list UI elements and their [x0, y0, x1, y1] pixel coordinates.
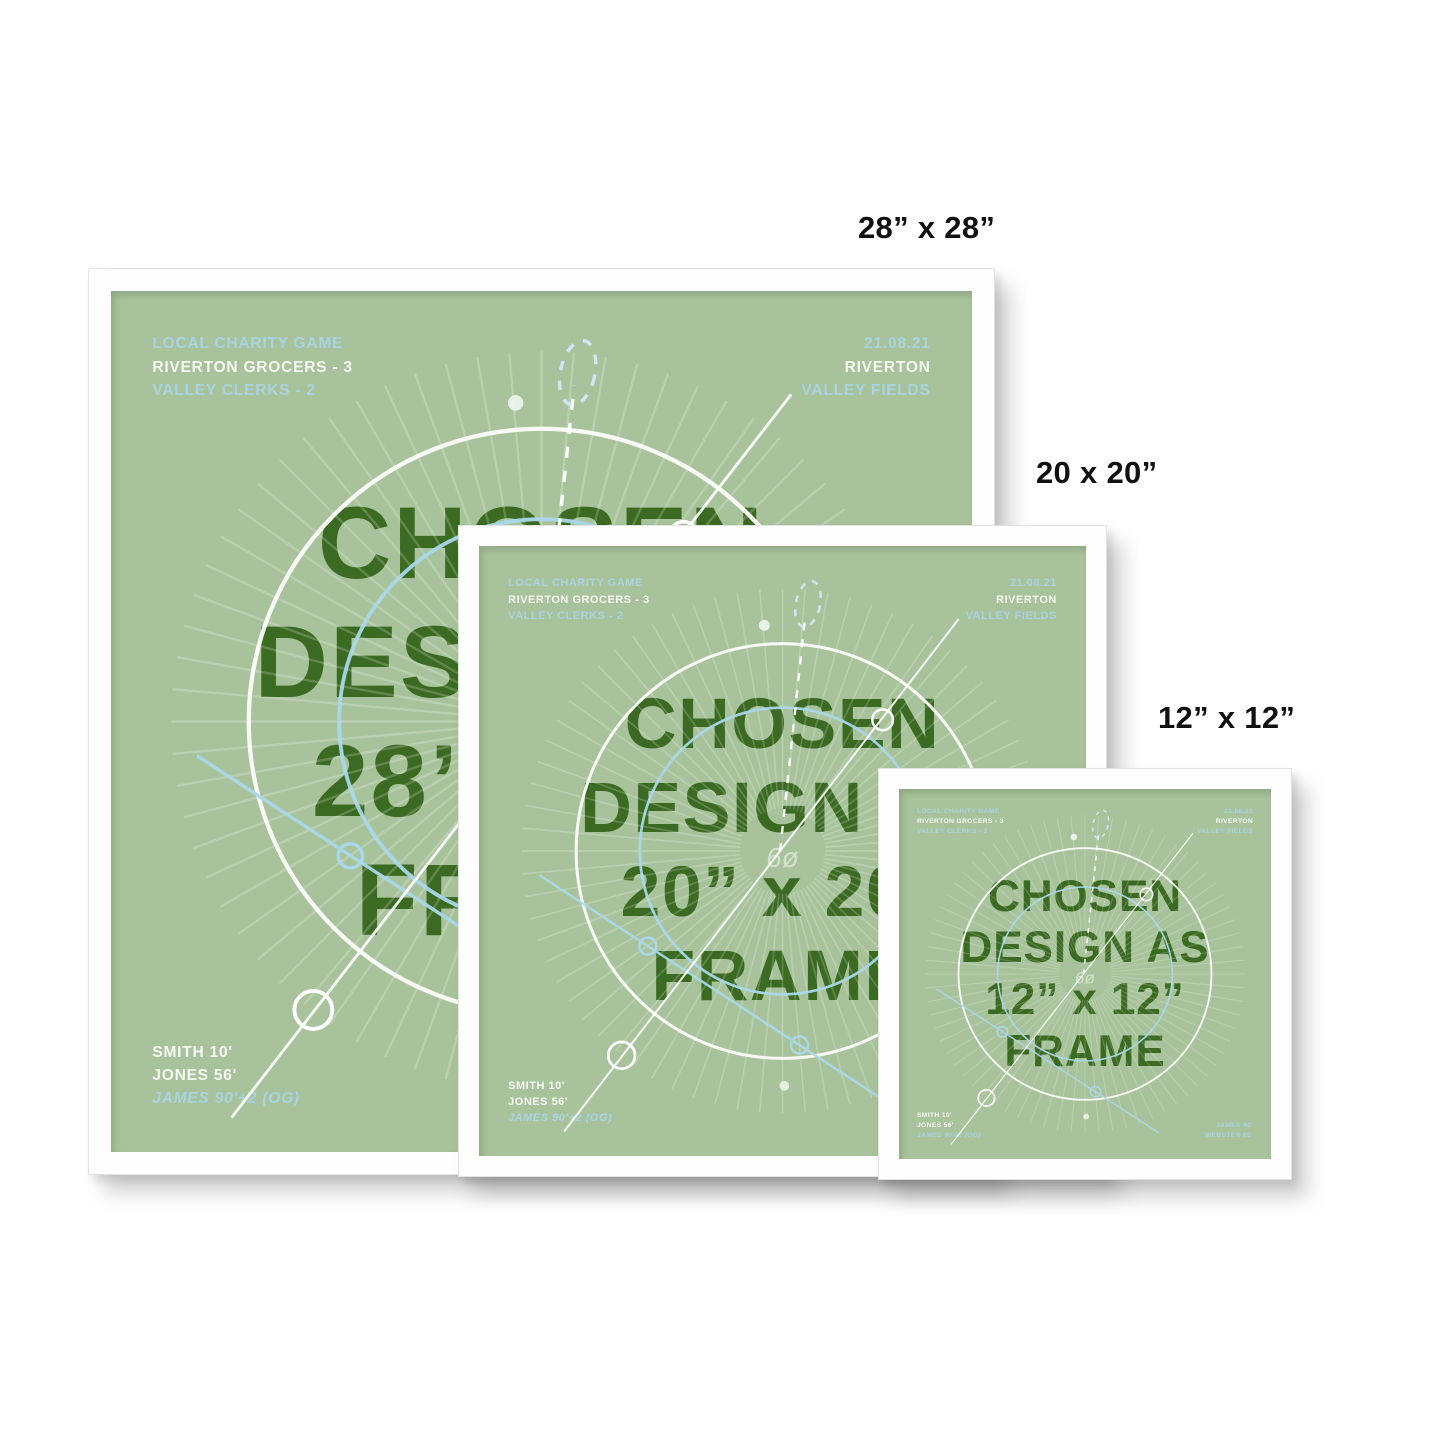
poster-header: LOCAL CHARITY GAME RIVERTON GROCERS - 3 …	[917, 807, 1253, 837]
scorer-line: JAMES 90'+2 (OG)	[508, 1110, 612, 1126]
scorer-line: JAMES 90'+2 (OG)	[152, 1087, 299, 1110]
size-label-12: 12” x 12”	[1158, 700, 1295, 736]
venue-info: 21.08.21 RIVERTON VALLEY FIELDS	[801, 332, 930, 402]
match-date: 21.08.21	[1197, 807, 1253, 817]
match-city: RIVERTON	[966, 592, 1057, 608]
match-city: RIVERTON	[801, 356, 930, 379]
scorers-away: JAMES 40' WEBSTER 65'	[1205, 1121, 1253, 1141]
title-line: CHOSEN	[508, 683, 1057, 767]
scorers-home: SMITH 10' JONES 56' JAMES 90'+2 (OG)	[508, 1078, 612, 1127]
scorer-line: SMITH 10'	[152, 1041, 299, 1064]
match-date: 21.08.21	[966, 575, 1057, 591]
title-line: CHOSEN	[917, 871, 1253, 923]
size-label-20: 20 x 20”	[1036, 455, 1157, 491]
scorers-home: SMITH 10' JONES 56' JAMES 90'+2 (OG)	[917, 1111, 981, 1141]
match-city: RIVERTON	[1197, 817, 1253, 827]
scorer-line: JONES 56'	[508, 1094, 612, 1110]
scorer-line: SMITH 10'	[508, 1078, 612, 1094]
away-team-score: VALLEY CLERKS - 2	[917, 827, 1004, 837]
away-team-score: VALLEY CLERKS - 2	[152, 379, 352, 402]
poster-title: CHOSEN DESIGN AS 12” x 12” FRAME	[917, 871, 1253, 1078]
match-venue: VALLEY FIELDS	[801, 379, 930, 402]
poster-footer: SMITH 10' JONES 56' JAMES 90'+2 (OG) JAM…	[917, 1111, 1253, 1141]
match-info: LOCAL CHARITY GAME RIVERTON GROCERS - 3 …	[917, 807, 1004, 837]
match-venue: VALLEY FIELDS	[966, 608, 1057, 624]
poster-print-12: LOCAL CHARITY GAME RIVERTON GROCERS - 3 …	[899, 789, 1271, 1159]
scorer-line: JAMES 90'+2 (OG)	[917, 1131, 981, 1141]
size-label-28: 28” x 28”	[858, 210, 995, 246]
home-team-score: RIVERTON GROCERS - 3	[152, 356, 352, 379]
match-info: LOCAL CHARITY GAME RIVERTON GROCERS - 3 …	[152, 332, 352, 402]
competition-label: LOCAL CHARITY GAME	[508, 575, 649, 591]
scorer-line: SMITH 10'	[917, 1111, 981, 1121]
poster-frame-12: LOCAL CHARITY GAME RIVERTON GROCERS - 3 …	[878, 768, 1292, 1180]
match-date: 21.08.21	[801, 332, 930, 355]
venue-info: 21.08.21 RIVERTON VALLEY FIELDS	[966, 575, 1057, 624]
title-line: DESIGN AS	[917, 922, 1253, 974]
match-venue: VALLEY FIELDS	[1197, 827, 1253, 837]
scorer-line: JONES 56'	[152, 1064, 299, 1087]
home-team-score: RIVERTON GROCERS - 3	[508, 592, 649, 608]
title-line: 12” x 12”	[917, 974, 1253, 1026]
away-team-score: VALLEY CLERKS - 2	[508, 608, 649, 624]
title-line: FRAME	[917, 1026, 1253, 1078]
competition-label: LOCAL CHARITY GAME	[917, 807, 1004, 817]
scorer-line: JAMES 40'	[1205, 1121, 1253, 1131]
scorer-line: WEBSTER 65'	[1205, 1131, 1253, 1141]
poster-header: LOCAL CHARITY GAME RIVERTON GROCERS - 3 …	[152, 332, 930, 402]
competition-label: LOCAL CHARITY GAME	[152, 332, 352, 355]
venue-info: 21.08.21 RIVERTON VALLEY FIELDS	[1197, 807, 1253, 837]
home-team-score: RIVERTON GROCERS - 3	[917, 817, 1004, 827]
scorers-home: SMITH 10' JONES 56' JAMES 90'+2 (OG)	[152, 1041, 299, 1111]
scorer-line: JONES 56'	[917, 1121, 981, 1131]
match-info: LOCAL CHARITY GAME RIVERTON GROCERS - 3 …	[508, 575, 649, 624]
poster-header: LOCAL CHARITY GAME RIVERTON GROCERS - 3 …	[508, 575, 1057, 624]
